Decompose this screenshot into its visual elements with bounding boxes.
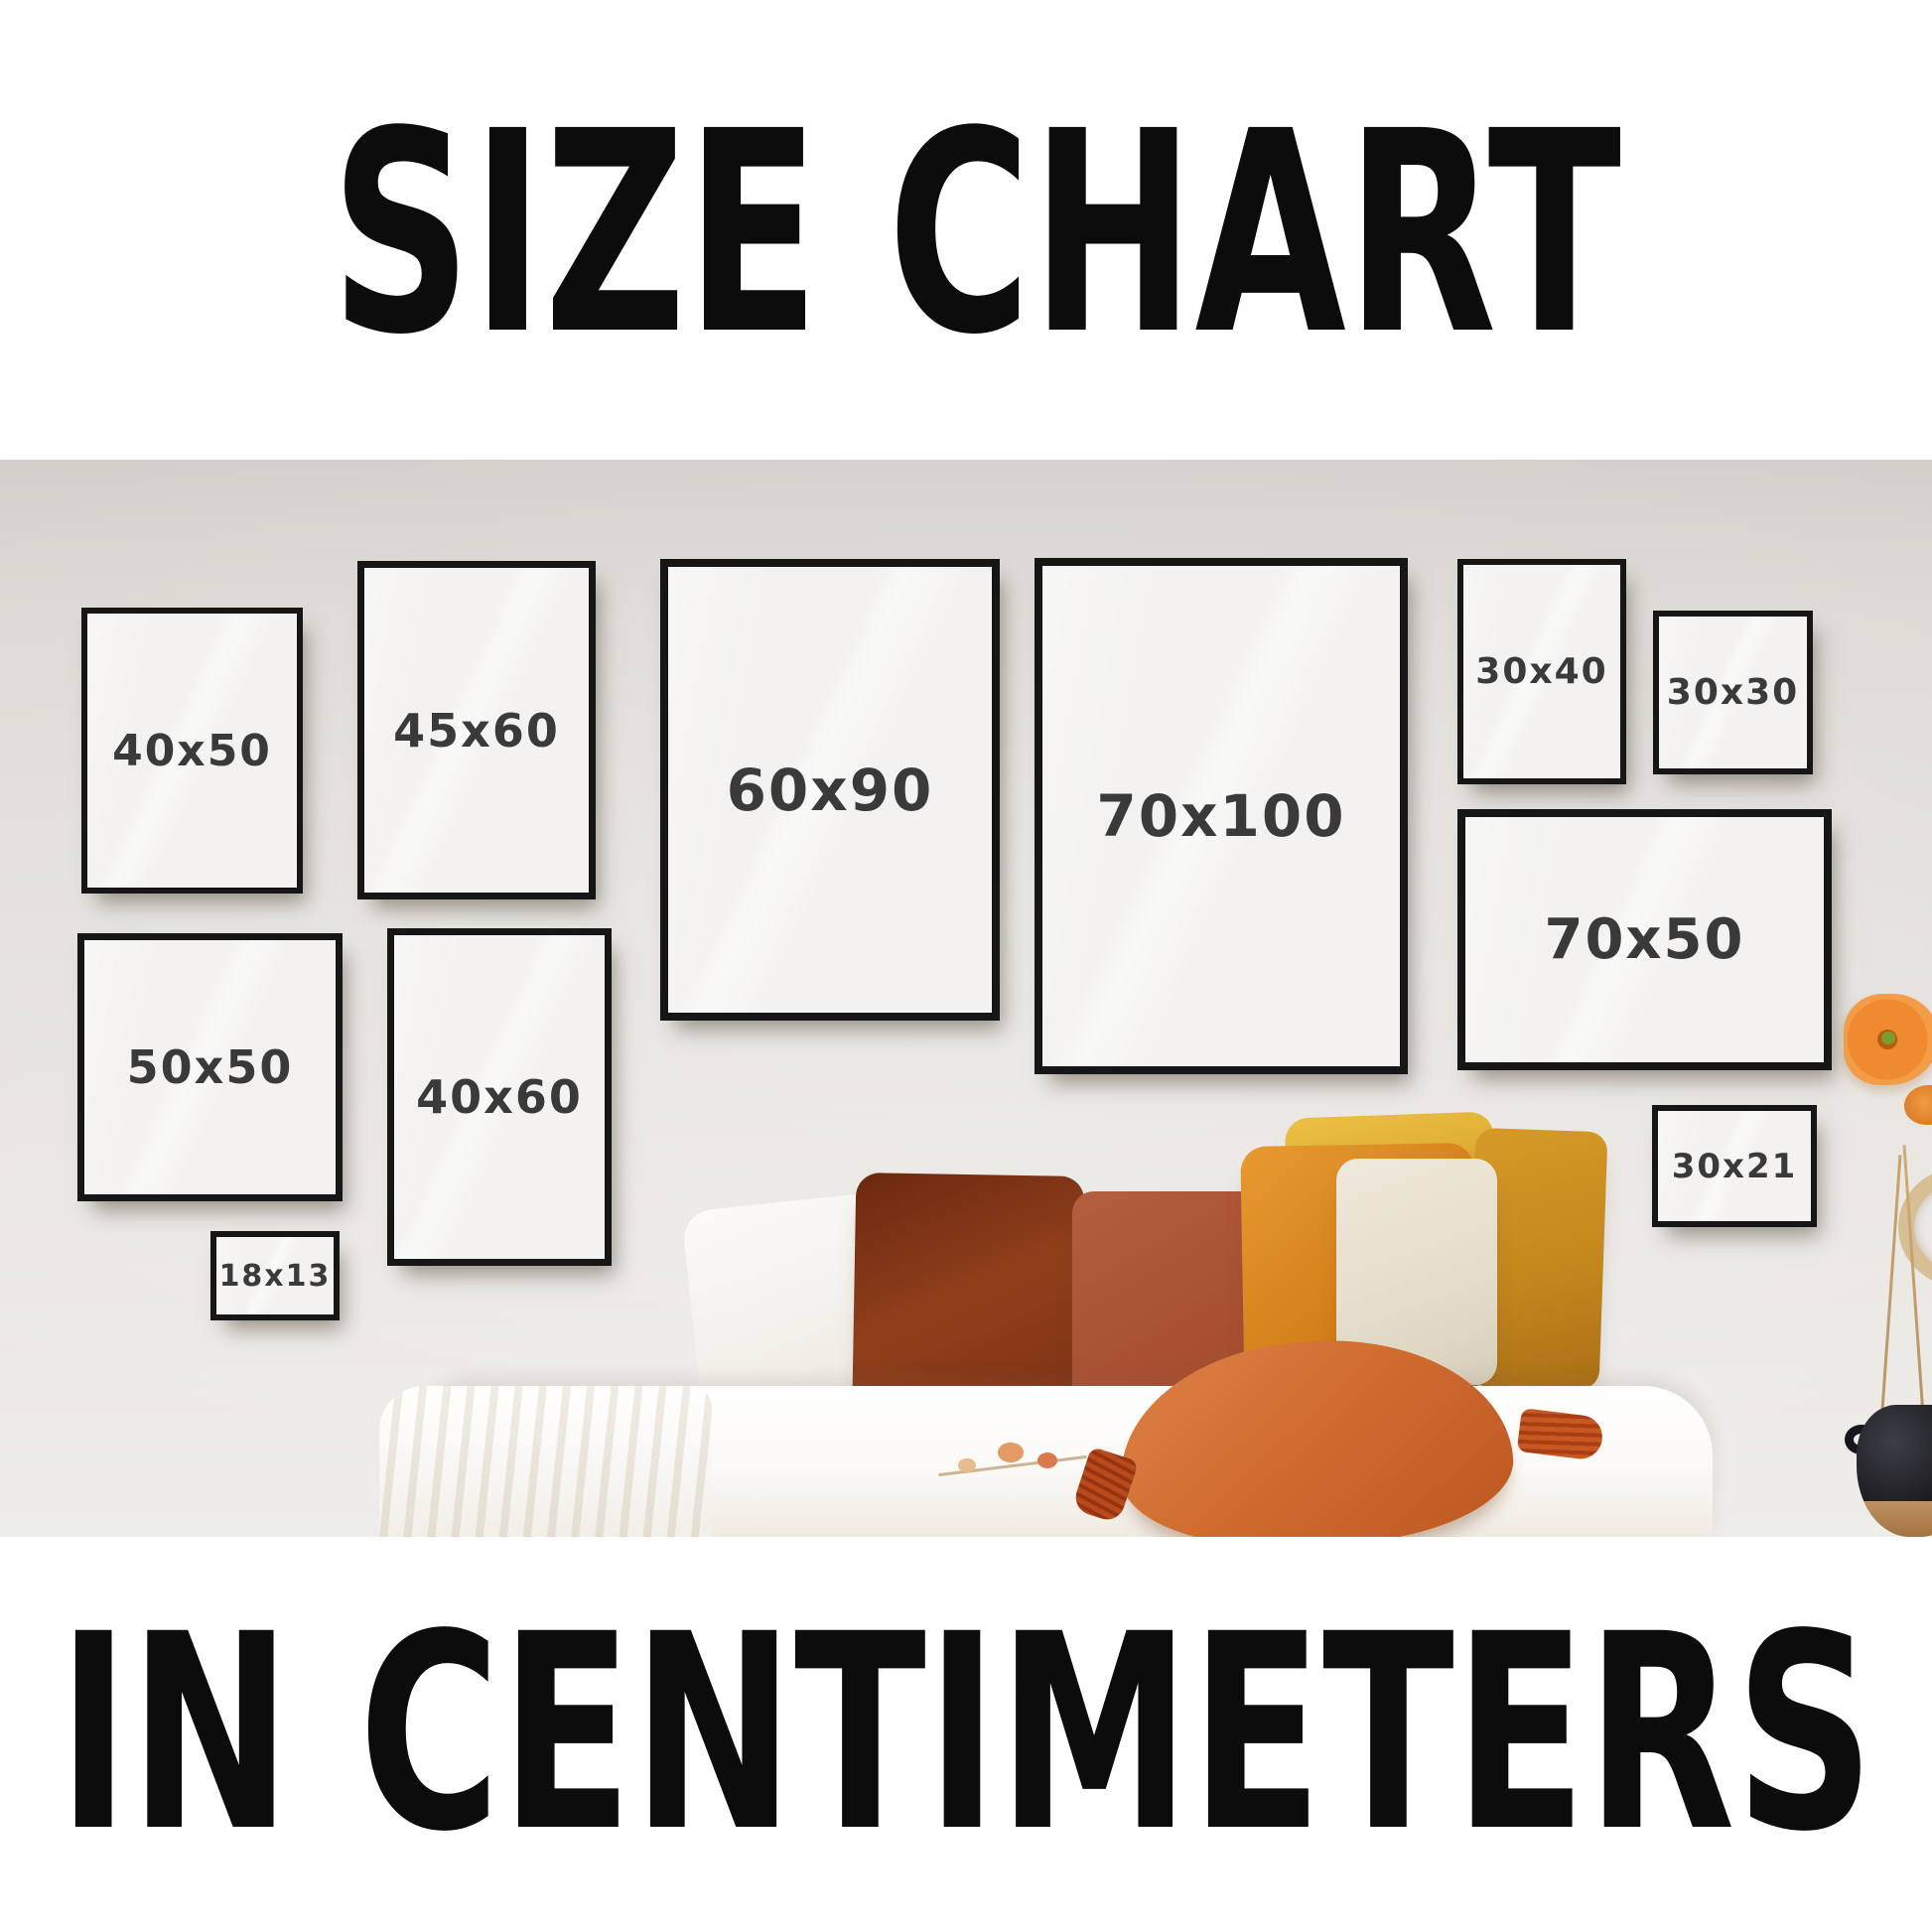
frame-30x21: 30x21	[1652, 1105, 1817, 1227]
bedroom-wall-photo: 40x5045x6060x9070x10030x4030x3070x5050x5…	[0, 460, 1932, 1537]
frame-40x50: 40x50	[81, 608, 303, 894]
top-title-graphic: SIZE CHART	[0, 0, 1932, 460]
frame-size-label: 40x50	[112, 726, 272, 776]
frame-60x90: 60x90	[660, 559, 1000, 1021]
frame-70x50: 70x50	[1457, 809, 1832, 1070]
frame-40x60: 40x60	[387, 928, 612, 1266]
frame-size-label: 70x50	[1545, 907, 1745, 972]
frame-size-label: 40x60	[416, 1070, 583, 1124]
frame-size-label: 45x60	[393, 704, 560, 758]
sprig-blossom	[1037, 1452, 1057, 1468]
frame-size-label: 30x30	[1667, 672, 1799, 713]
frame-70x100: 70x100	[1035, 558, 1408, 1074]
vase-cork-base	[1857, 1501, 1932, 1537]
frame-30x30: 30x30	[1653, 611, 1813, 774]
frame-size-label: 70x100	[1096, 782, 1345, 850]
frame-size-label: 30x21	[1672, 1147, 1798, 1186]
frame-45x60: 45x60	[357, 561, 596, 899]
page-subtitle: IN CENTIMETERS	[58, 1578, 1874, 1891]
black-vase	[1857, 1405, 1932, 1537]
frame-size-label: 60x90	[727, 757, 934, 824]
size-chart-poster: SIZE CHART 40x5045x6060x9070x10030x4030x…	[0, 0, 1932, 1932]
flower-center	[1881, 1032, 1895, 1044]
sprig-blossom	[998, 1443, 1024, 1462]
bottom-title-band: IN CENTIMETERS	[0, 1537, 1932, 1932]
bottom-title-graphic: IN CENTIMETERS	[0, 1537, 1932, 1932]
top-title-band: SIZE CHART	[0, 0, 1932, 460]
page-title: SIZE CHART	[331, 72, 1622, 396]
frame-30x40: 30x40	[1457, 559, 1626, 784]
rattan-circle-decor	[1898, 1167, 1932, 1288]
frame-18x13: 18x13	[210, 1231, 340, 1320]
frame-50x50: 50x50	[77, 933, 343, 1201]
orange-flower-bud	[1904, 1085, 1932, 1125]
frame-size-label: 50x50	[127, 1040, 294, 1094]
white-throw-blanket	[379, 1386, 712, 1537]
sprig-blossom	[958, 1458, 976, 1472]
frame-size-label: 18x13	[219, 1259, 332, 1294]
frame-size-label: 30x40	[1475, 651, 1607, 692]
